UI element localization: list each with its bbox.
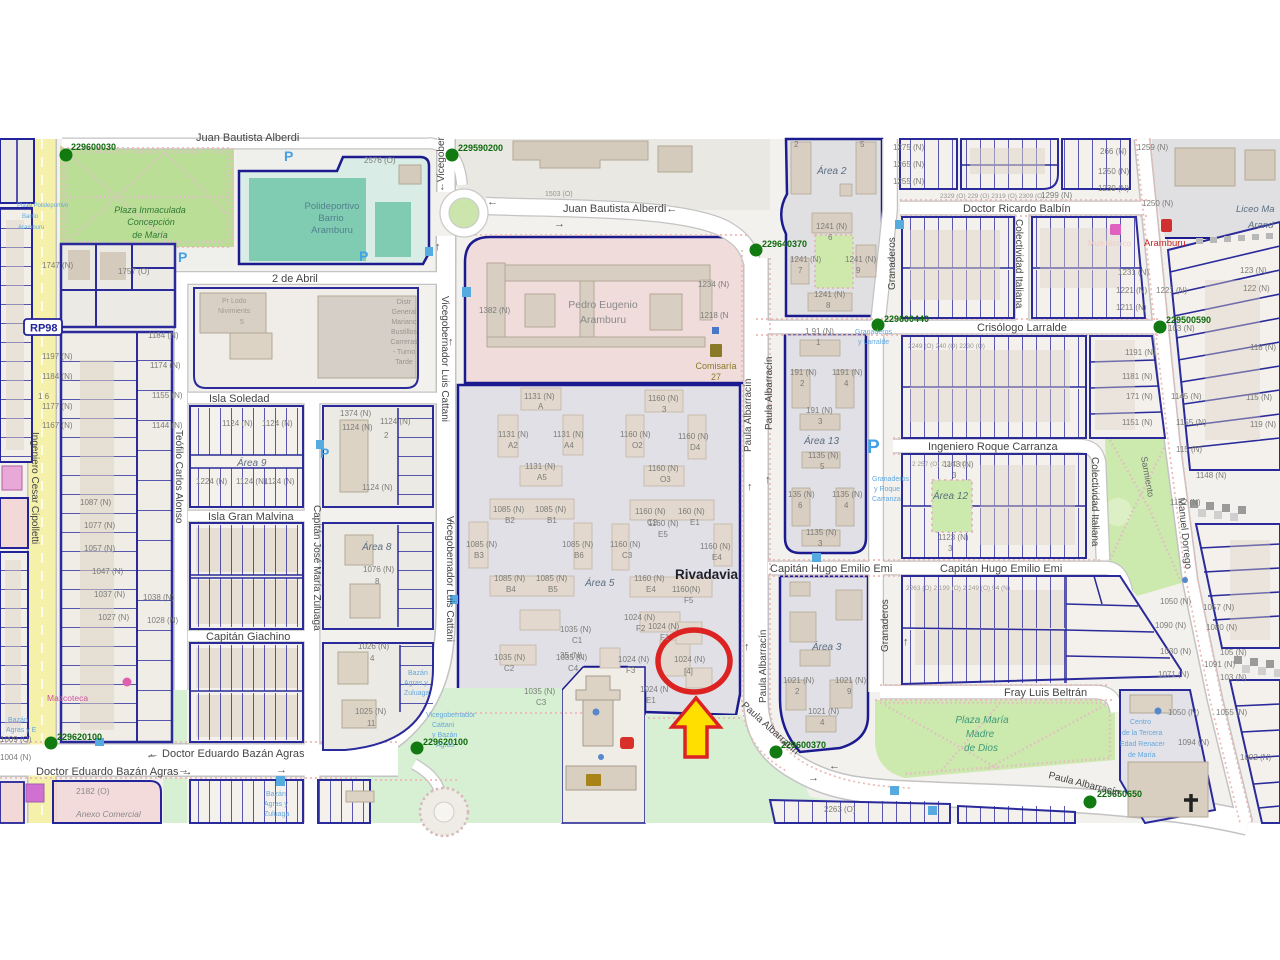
svg-text:1131 (N): 1131 (N) [553, 430, 584, 439]
svg-text:1503 (O): 1503 (O) [545, 191, 573, 198]
svg-text:↑: ↑ [903, 636, 909, 648]
svg-text:1747 (N): 1747 (N) [42, 261, 73, 270]
svg-text:y Roque: y Roque [874, 486, 900, 493]
svg-text:Colectividad Italiana: Colectividad Italiana [1013, 219, 1024, 309]
svg-text:P: P [178, 249, 187, 265]
svg-text:Capitán Hugo Emilio Emi: Capitán Hugo Emilio Emi [940, 563, 1062, 575]
svg-text:1250 (N): 1250 (N) [1142, 199, 1173, 208]
svg-text:3: 3 [818, 539, 823, 548]
svg-text:2 de Abril: 2 de Abril [272, 273, 318, 285]
svg-text:B1: B1 [547, 516, 557, 525]
svg-text:1241 (N): 1241 (N) [845, 255, 876, 264]
svg-text:1055 (N): 1055 (N) [1216, 708, 1247, 717]
svg-text:Zuluaga: Zuluaga [264, 811, 289, 818]
svg-text:1160 (N): 1160 (N) [678, 432, 709, 441]
svg-text:Colectividad Italiana: Colectividad Italiana [1089, 457, 1100, 547]
svg-text:Agras y: Agras y [264, 801, 288, 808]
svg-text:1: 1 [816, 338, 821, 347]
svg-text:Granaderos: Granaderos [887, 237, 898, 290]
svg-text:←Vicegober: ←Vicegober [436, 136, 447, 192]
svg-text:E5: E5 [658, 530, 668, 539]
svg-text:5: 5 [860, 140, 865, 149]
svg-text:1135 (N): 1135 (N) [832, 490, 863, 499]
svg-text:←: ← [829, 760, 840, 772]
svg-text:B2: B2 [505, 516, 515, 525]
svg-text:Teófilo Carlos Alonso: Teófilo Carlos Alonso [173, 430, 184, 524]
svg-text:de María: de María [1128, 752, 1156, 759]
svg-text:1085 (N): 1085 (N) [466, 540, 497, 549]
svg-text:Arand: Arand [1247, 220, 1274, 231]
svg-text:1241 (N): 1241 (N) [816, 222, 847, 231]
svg-text:1038 (N): 1038 (N) [143, 593, 174, 602]
svg-text:Cattani: Cattani [432, 722, 455, 729]
svg-text:1124 (N): 1124 (N) [362, 483, 393, 492]
svg-text:1035 (N): 1035 (N) [560, 625, 591, 634]
svg-text:122 (N): 122 (N) [1243, 284, 1270, 293]
svg-text:B3: B3 [474, 551, 484, 560]
svg-text:1037 (N): 1037 (N) [94, 590, 125, 599]
svg-text:P: P [867, 437, 880, 458]
svg-text:Doctor Ricardo Balbín: Doctor Ricardo Balbín [963, 203, 1071, 215]
svg-text:Agras y: Agras y [404, 680, 428, 687]
svg-text:1024 (N): 1024 (N) [674, 655, 705, 664]
svg-text:1167 (N): 1167 (N) [42, 421, 73, 430]
svg-text:C4: C4 [568, 664, 579, 673]
svg-text:171 (N): 171 (N) [1126, 392, 1153, 401]
svg-text:Carranza: Carranza [872, 496, 901, 503]
svg-text:1076 (N): 1076 (N) [363, 565, 394, 574]
svg-text:1197 (N): 1197 (N) [42, 352, 73, 361]
svg-text:A: A [538, 402, 544, 411]
svg-text:O2: O2 [632, 441, 643, 450]
svg-text:Zuluaga: Zuluaga [404, 690, 429, 697]
svg-text:118 (N): 118 (N) [1250, 343, 1276, 352]
svg-text:2182 (O): 2182 (O) [76, 786, 110, 796]
svg-text:1231 (N): 1231 (N) [1118, 268, 1149, 277]
svg-text:B5: B5 [548, 585, 558, 594]
svg-text:1124 (N): 1124 (N) [262, 419, 293, 428]
svg-text:1145 (N): 1145 (N) [1171, 392, 1202, 401]
svg-text:1148 (N): 1148 (N) [1196, 471, 1227, 480]
svg-text:1024 (N): 1024 (N) [648, 622, 679, 631]
svg-text:Tarde: Tarde [395, 359, 413, 366]
svg-text:8: 8 [826, 301, 831, 310]
svg-text:2: 2 [795, 687, 800, 696]
svg-text:1160 (N): 1160 (N) [635, 507, 666, 516]
svg-text:1124 (N): 1124 (N) [236, 477, 267, 486]
svg-text:1077 (N): 1077 (N) [84, 521, 115, 530]
svg-text:1087 (N): 1087 (N) [80, 498, 111, 507]
svg-text:1160 (N): 1160 (N) [634, 574, 665, 583]
svg-text:2576 (O): 2576 (O) [364, 156, 396, 165]
svg-text:1160 (N): 1160 (N) [700, 542, 731, 551]
svg-text:→: → [178, 764, 189, 776]
svg-text:6: 6 [828, 233, 833, 242]
svg-text:Ingeniero Roque Carranza: Ingeniero Roque Carranza [928, 441, 1059, 453]
svg-text:4: 4 [820, 718, 825, 727]
svg-text:1131 (N): 1131 (N) [525, 462, 556, 471]
svg-text:119 (N): 119 (N) [1250, 420, 1276, 429]
svg-text:2: 2 [384, 431, 389, 440]
svg-text:191 (N): 191 (N) [790, 368, 817, 377]
svg-text:1021 (N): 1021 (N) [808, 707, 839, 716]
svg-text:1241 (N): 1241 (N) [790, 255, 821, 264]
svg-text:1028 (N): 1028 (N) [147, 616, 178, 625]
svg-text:135 (N): 135 (N) [788, 490, 815, 499]
svg-text:9: 9 [847, 687, 852, 696]
svg-text:1239 (N): 1239 (N) [1098, 184, 1129, 193]
svg-text:Capitán Hugo Emilio Emi: Capitán Hugo Emilio Emi [770, 563, 892, 575]
svg-text:1131 (N): 1131 (N) [524, 392, 555, 401]
svg-text:← Doctor Eduardo Bazán Agras: ← Doctor Eduardo Bazán Agras [148, 748, 305, 760]
svg-text:P: P [359, 248, 368, 264]
svg-text:Anexo Comercial: Anexo Comercial [75, 809, 142, 819]
svg-text:103 (N): 103 (N) [1220, 673, 1247, 682]
svg-text:229600440: 229600440 [884, 314, 929, 324]
svg-text:8: 8 [375, 577, 380, 586]
svg-text:1382 (N): 1382 (N) [479, 306, 510, 315]
svg-text:→: → [276, 764, 287, 776]
svg-text:Plaza Inmaculada: Plaza Inmaculada [114, 205, 186, 215]
svg-text:Granaderos: Granaderos [880, 599, 891, 652]
svg-text:1135 (N): 1135 (N) [808, 451, 839, 460]
svg-text:1131 (N): 1131 (N) [498, 430, 529, 439]
svg-text:Concepción: Concepción [127, 217, 175, 227]
svg-text:1080 (N): 1080 (N) [1206, 623, 1237, 632]
svg-text:←: ← [146, 749, 157, 761]
svg-text:Vicegobernador: Vicegobernador [426, 712, 476, 719]
svg-text:Área 13: Área 13 [803, 434, 839, 447]
svg-text:229600030: 229600030 [71, 142, 116, 152]
svg-text:Ingeniero Cesar Cipolletti: Ingeniero Cesar Cipolletti [29, 432, 40, 544]
svg-text:9: 9 [856, 266, 861, 275]
svg-text:Aramburu: Aramburu [311, 225, 353, 236]
svg-text:C3: C3 [622, 551, 633, 560]
svg-text:1160 (N): 1160 (N) [620, 430, 651, 439]
svg-text:y Larralde: y Larralde [858, 339, 889, 346]
svg-text:E1: E1 [646, 696, 656, 705]
svg-text:A5: A5 [537, 473, 547, 482]
svg-text:F1: F1 [660, 633, 670, 642]
svg-text:1024 (N): 1024 (N) [624, 613, 655, 622]
svg-text:1151 (N): 1151 (N) [1122, 418, 1153, 427]
svg-text:B4: B4 [506, 585, 516, 594]
svg-text:5: 5 [240, 319, 244, 326]
svg-text:Rivadavia: Rivadavia [675, 567, 739, 582]
svg-text:1050 (N): 1050 (N) [1160, 597, 1191, 606]
svg-text:Área 12: Área 12 [932, 489, 968, 502]
svg-text:F2: F2 [636, 624, 646, 633]
svg-text:3: 3 [818, 417, 823, 426]
svg-text:Granaderos: Granaderos [855, 329, 892, 336]
svg-text:de María: de María [132, 230, 168, 240]
svg-text:de Dios: de Dios [964, 743, 998, 754]
svg-text:1009 (O): 1009 (O) [0, 735, 32, 744]
svg-text:Área 8: Área 8 [361, 540, 392, 553]
svg-text:1085 (N): 1085 (N) [536, 574, 567, 583]
svg-text:2: 2 [800, 379, 805, 388]
svg-text:1030 (N): 1030 (N) [1160, 647, 1191, 656]
svg-text:1757 (O): 1757 (O) [118, 267, 150, 276]
svg-text:General: General [392, 309, 417, 316]
svg-text:P: P [284, 148, 293, 164]
svg-text:1132 (N): 1132 (N) [1170, 498, 1201, 507]
svg-text:Isla Soledad: Isla Soledad [209, 393, 270, 405]
svg-text:1004 (N): 1004 (N) [0, 753, 31, 762]
svg-text:5: 5 [820, 462, 825, 471]
svg-text:Granaderos: Granaderos [872, 476, 909, 483]
svg-text:RP98: RP98 [30, 323, 58, 335]
svg-text:[4]: [4] [684, 667, 693, 676]
svg-text:105 (N): 105 (N) [1220, 648, 1247, 657]
svg-text:1085 (N): 1085 (N) [493, 505, 524, 514]
svg-text:Crisólogo Larralde: Crisólogo Larralde [977, 322, 1067, 334]
svg-text:Doctor Eduardo Bazán Agras →: Doctor Eduardo Bazán Agras → [36, 766, 193, 778]
svg-text:1085 (N): 1085 (N) [562, 540, 593, 549]
svg-text:Capitán José María Zuluaga: Capitán José María Zuluaga [311, 505, 322, 631]
svg-text:1255 (N): 1255 (N) [893, 177, 924, 186]
svg-text:E4: E4 [646, 585, 656, 594]
svg-text:→: → [554, 218, 565, 230]
svg-text:1160(N): 1160(N) [672, 585, 701, 594]
svg-text:Bustillos: Bustillos [391, 329, 418, 336]
svg-text:y Bazán: y Bazán [432, 732, 457, 739]
svg-text:C1: C1 [572, 636, 583, 645]
svg-text:1224 (N): 1224 (N) [196, 477, 227, 486]
svg-text:Paula Albarracín: Paula Albarracín [764, 357, 775, 430]
svg-text:2329 (O) 229 (O) 2319 (O) 2: 2329 (O) 229 (O) 2319 (O) 2309 (O) [940, 193, 1044, 200]
svg-text:Vicegobernador Luis Cattani: Vicegobernador Luis Cattani [439, 296, 450, 422]
svg-text:- Turno: - Turno [393, 349, 415, 356]
svg-text:1124 (N): 1124 (N) [264, 477, 295, 486]
svg-text:Aramburu: Aramburu [1144, 238, 1186, 249]
svg-text:E1: E1 [690, 518, 700, 527]
svg-text:1374 (N): 1374 (N) [340, 409, 371, 418]
svg-text:1191 (N): 1191 (N) [1125, 348, 1156, 357]
svg-text:1155 (N): 1155 (N) [1176, 418, 1207, 427]
svg-text:1160 (N): 1160 (N) [648, 519, 679, 528]
svg-text:Barrio: Barrio [22, 214, 39, 220]
svg-text:F5: F5 [684, 596, 694, 605]
svg-text:1085 (N): 1085 (N) [535, 505, 566, 514]
svg-text:Juan Bautista Alberdi: Juan Bautista Alberdi [196, 132, 299, 144]
svg-text:1050 (N): 1050 (N) [1168, 708, 1199, 717]
svg-text:123 (N): 123 (N) [1240, 266, 1267, 275]
svg-text:115 (N): 115 (N) [1176, 445, 1202, 454]
svg-text:1160 (N): 1160 (N) [648, 394, 679, 403]
svg-text:Fray Luis Beltrán: Fray Luis Beltrán [1004, 687, 1087, 699]
svg-text:35 (N): 35 (N) [560, 651, 583, 660]
svg-text:1090 (N): 1090 (N) [1155, 621, 1186, 630]
svg-text:2: 2 [794, 140, 799, 149]
svg-text:1123 (N): 1123 (N) [938, 533, 969, 542]
svg-text:1234 (N): 1234 (N) [698, 280, 729, 289]
svg-text:Vicegobernador Luis Cattani: Vicegobernador Luis Cattani [444, 516, 455, 642]
svg-text:Mariano: Mariano [391, 319, 416, 326]
svg-text:1091 (N): 1091 (N) [1204, 660, 1235, 669]
svg-text:1184 (N): 1184 (N) [42, 372, 73, 381]
svg-text:2249 (O) 240 (O) 2230 (O): 2249 (O) 240 (O) 2230 (O) [908, 343, 985, 350]
svg-text:Pedro Eugenio: Pedro Eugenio [568, 299, 638, 311]
svg-text:1025 (N): 1025 (N) [355, 707, 386, 716]
svg-text:Área 9: Área 9 [236, 456, 267, 469]
svg-text:Aramburu: Aramburu [580, 314, 626, 326]
svg-text:1057 (N): 1057 (N) [84, 544, 115, 553]
svg-text:1024 (N): 1024 (N) [618, 655, 649, 664]
svg-text:de la Tercera: de la Tercera [1122, 730, 1162, 737]
svg-text:Área 5: Área 5 [584, 576, 615, 589]
svg-text:1299 (N): 1299 (N) [1041, 191, 1072, 200]
svg-text:1027 (N): 1027 (N) [98, 613, 129, 622]
svg-text:1184 (N): 1184 (N) [148, 331, 179, 340]
svg-text:1259 (N): 1259 (N) [1137, 143, 1168, 152]
svg-text:←: ← [487, 196, 498, 208]
svg-text:115 (N): 115 (N) [1246, 393, 1272, 402]
svg-text:Mun técnico: Mun técnico [1088, 239, 1132, 248]
svg-text:4: 4 [370, 654, 375, 663]
svg-text:1174 (N): 1174 (N) [150, 361, 181, 370]
svg-text:↑: ↑ [448, 516, 454, 528]
svg-text:1155 (N): 1155 (N) [152, 391, 183, 400]
svg-text:↑: ↑ [747, 481, 753, 493]
svg-text:1124 (N): 1124 (N) [222, 419, 253, 428]
svg-text:E4: E4 [712, 553, 722, 562]
svg-text:1160 (N): 1160 (N) [610, 540, 641, 549]
svg-text:1047 (N): 1047 (N) [92, 567, 123, 576]
svg-text:1035 (N): 1035 (N) [524, 687, 555, 696]
svg-text:1241 (N): 1241 (N) [814, 290, 845, 299]
svg-text:229640370: 229640370 [762, 239, 807, 249]
svg-text:1124 (N): 1124 (N) [342, 423, 373, 432]
svg-text:A2: A2 [508, 441, 518, 450]
svg-text:Área 3: Área 3 [811, 640, 842, 653]
svg-text:1275 (N): 1275 (N) [893, 143, 924, 152]
svg-text:Madre: Madre [966, 729, 995, 740]
svg-text:Plaza Polideportivo: Plaza Polideportivo [17, 203, 69, 209]
svg-text:F3: F3 [626, 666, 636, 675]
svg-text:1094 (N): 1094 (N) [1178, 738, 1209, 747]
svg-text:Agras: Agras [436, 742, 455, 749]
svg-text:1 91 (N): 1 91 (N) [805, 327, 834, 336]
svg-text:Centro: Centro [1130, 719, 1151, 726]
svg-text:1177 (N): 1177 (N) [42, 402, 73, 411]
svg-text:191 (N): 191 (N) [806, 406, 833, 415]
svg-text:O3: O3 [660, 475, 671, 484]
svg-text:Pr Lodo: Pr Lodo [222, 298, 247, 305]
svg-text:Juan Bautista Alberdi←: Juan Bautista Alberdi← [563, 203, 677, 215]
svg-text:Liceo Ma: Liceo Ma [1236, 204, 1275, 215]
svg-text:1035 (N): 1035 (N) [494, 653, 525, 662]
svg-text:C2: C2 [504, 664, 515, 673]
svg-text:1085 (N): 1085 (N) [494, 574, 525, 583]
svg-text:1218 (N: 1218 (N [700, 311, 729, 320]
svg-text:Comisaría: Comisaría [695, 361, 736, 371]
svg-text:1181 (N): 1181 (N) [1122, 372, 1153, 381]
svg-text:↑: ↑ [744, 641, 750, 653]
svg-text:1021 (N): 1021 (N) [783, 676, 814, 685]
svg-text:Mazcoteca: Mazcoteca [47, 693, 88, 703]
svg-text:Plaza María: Plaza María [955, 715, 1009, 726]
svg-text:229620100: 229620100 [57, 732, 102, 742]
svg-text:27: 27 [711, 372, 721, 382]
svg-text:Polideportivo: Polideportivo [305, 201, 360, 212]
svg-text:Agras y E: Agras y E [6, 727, 37, 734]
svg-text:1191 (N): 1191 (N) [832, 368, 863, 377]
svg-text:Barrio: Barrio [318, 213, 343, 224]
svg-text:P: P [320, 445, 329, 461]
svg-text:4: 4 [844, 501, 849, 510]
svg-text:3: 3 [952, 471, 957, 480]
svg-text:103 (N): 103 (N) [1168, 324, 1195, 333]
svg-text:1160 (N): 1160 (N) [648, 464, 679, 473]
svg-text:Bazán: Bazán [266, 791, 286, 798]
svg-text:1124 (N): 1124 (N) [380, 417, 411, 426]
svg-text:1135 (N): 1135 (N) [806, 528, 837, 537]
svg-text:B6: B6 [574, 551, 584, 560]
svg-text:1092 (N): 1092 (N) [1240, 753, 1271, 762]
svg-text:Nivimients: Nivimients [218, 308, 251, 315]
svg-text:C3: C3 [536, 698, 547, 707]
svg-text:↑: ↑ [435, 241, 441, 253]
svg-text:Capitán Giachino: Capitán Giachino [206, 631, 290, 643]
svg-text:1211 (N): 1211 (N) [1116, 303, 1147, 312]
svg-text:Paula Albarracín: Paula Albarracín [758, 630, 769, 703]
svg-text:Paula Albarracín: Paula Albarracín [743, 379, 754, 452]
svg-text:1250 (N): 1250 (N) [1098, 167, 1129, 176]
svg-text:11: 11 [367, 719, 376, 728]
svg-text:2263 (O) 2 199 (O) 2 249 (O): 2263 (O) 2 199 (O) 2 249 (O) 94 (N) [906, 585, 1010, 592]
svg-text:1265 (N): 1265 (N) [893, 160, 924, 169]
svg-text:Isla Gran Malvina: Isla Gran Malvina [208, 511, 294, 523]
svg-text:→: → [808, 772, 819, 784]
svg-text:Aramburu: Aramburu [18, 225, 44, 231]
svg-text:1021 (N): 1021 (N) [835, 676, 866, 685]
svg-text:1221 (N): 1221 (N) [1116, 286, 1147, 295]
svg-text:6: 6 [798, 501, 803, 510]
svg-text:7: 7 [798, 266, 803, 275]
svg-text:1057 (N): 1057 (N) [1203, 603, 1234, 612]
svg-text:1024 (N: 1024 (N [640, 685, 669, 694]
svg-text:2263 (O): 2263 (O) [824, 805, 856, 814]
svg-text:↑: ↑ [765, 474, 771, 486]
svg-text:↑: ↑ [448, 336, 454, 348]
svg-text:Área 2: Área 2 [816, 164, 847, 177]
svg-text:229590200: 229590200 [458, 143, 503, 153]
svg-text:Bazán: Bazán [408, 670, 428, 677]
svg-text:1071 (N): 1071 (N) [1158, 670, 1189, 679]
svg-text:1144 (N): 1144 (N) [152, 421, 183, 430]
svg-text:A4: A4 [564, 441, 574, 450]
svg-text:266 (N): 266 (N) [1100, 147, 1127, 156]
svg-text:2 257 (O) 2 260 (O): 2 257 (O) 2 260 (O) [912, 461, 969, 468]
svg-text:3: 3 [662, 405, 667, 414]
svg-text:D4: D4 [690, 443, 701, 452]
svg-text:Edad Renacer: Edad Renacer [1120, 741, 1165, 748]
svg-text:Distr: Distr [397, 299, 412, 306]
svg-text:Bazán: Bazán [8, 717, 28, 724]
svg-text:4: 4 [844, 379, 849, 388]
svg-text:3: 3 [948, 544, 953, 553]
svg-text:1 6: 1 6 [38, 392, 50, 401]
svg-text:160 (N): 160 (N) [678, 507, 705, 516]
svg-text:Carreras: Carreras [390, 339, 418, 346]
svg-text:1026 (N): 1026 (N) [358, 642, 389, 651]
svg-text:1221 (N): 1221 (N) [1156, 286, 1187, 295]
